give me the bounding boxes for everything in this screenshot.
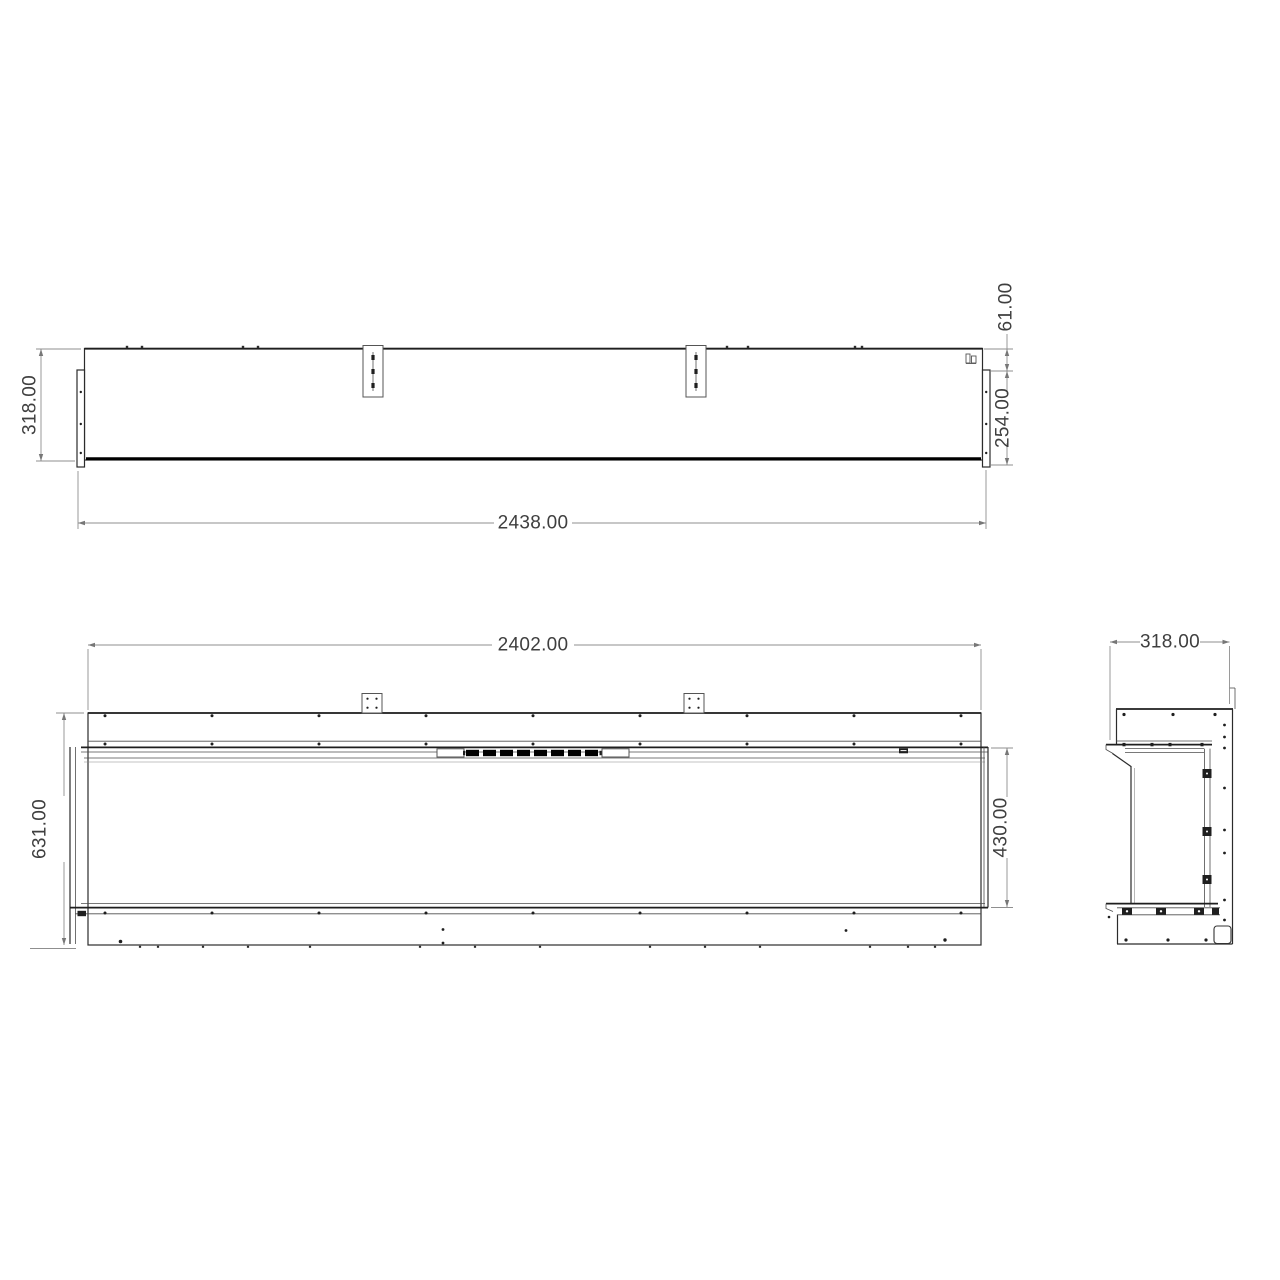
drawing-line bbox=[602, 749, 629, 757]
clip-mark bbox=[1123, 743, 1126, 746]
screw-dot bbox=[80, 452, 82, 454]
bottom-clip bbox=[78, 911, 87, 916]
drawing-line bbox=[600, 751, 602, 755]
drawing-line bbox=[1206, 773, 1208, 775]
top-view-chassis bbox=[85, 349, 983, 461]
screw-dot bbox=[639, 714, 642, 717]
rivet-dot bbox=[688, 698, 690, 700]
dim-label-top-front-depth: 254.00 bbox=[993, 388, 1014, 448]
drawing-line bbox=[1113, 754, 1132, 767]
edge-tick bbox=[861, 346, 863, 348]
drawing-line bbox=[371, 383, 374, 388]
screw-dot bbox=[960, 743, 963, 746]
screw-dot bbox=[1223, 787, 1226, 790]
dimension-arrow bbox=[62, 713, 66, 720]
dimension-arrow bbox=[39, 454, 43, 461]
screw-dot bbox=[104, 714, 107, 717]
screw-dot bbox=[1124, 938, 1127, 941]
dimension-top-width: 2438.00 bbox=[78, 470, 986, 534]
screw-dot bbox=[746, 714, 749, 717]
screw-dot bbox=[985, 391, 987, 393]
rivet-dot bbox=[697, 707, 699, 709]
dim-label-top-rear-offset: 61.00 bbox=[996, 282, 1017, 331]
edge-tick bbox=[126, 346, 128, 348]
screw-dot bbox=[318, 743, 321, 746]
screw-dot bbox=[1223, 852, 1226, 855]
side-view: 318.00 bbox=[1106, 632, 1235, 945]
dimension-arrow bbox=[1005, 371, 1009, 378]
burner-dash bbox=[466, 750, 479, 756]
burner-dash bbox=[483, 750, 496, 756]
drawing-line bbox=[1106, 745, 1113, 754]
screw-dot bbox=[1223, 736, 1226, 739]
edge-tick bbox=[202, 946, 204, 948]
edge-tick bbox=[247, 946, 249, 948]
dimension-arrow bbox=[1005, 458, 1009, 465]
screw-dot bbox=[211, 912, 214, 915]
screw-dot bbox=[1122, 713, 1125, 716]
drawing-line bbox=[1106, 904, 1113, 912]
clip-mark bbox=[1151, 743, 1154, 746]
mounting-tab-right bbox=[684, 694, 704, 714]
drawing-line bbox=[1198, 910, 1200, 912]
drawing-line bbox=[371, 369, 374, 374]
screw-dot bbox=[960, 714, 963, 717]
screw-dot bbox=[1223, 747, 1226, 750]
screw-dot bbox=[853, 912, 856, 915]
screw-dot bbox=[1108, 916, 1111, 919]
dimension-arrow bbox=[974, 643, 981, 647]
mounting-bracket-right bbox=[686, 346, 706, 398]
screw-dot bbox=[639, 743, 642, 746]
screw-dot bbox=[985, 423, 987, 425]
screw-dot bbox=[1166, 938, 1169, 941]
screw-dot bbox=[442, 942, 445, 945]
drawing-line bbox=[1212, 908, 1219, 915]
edge-tick bbox=[854, 346, 856, 348]
screw-dot bbox=[532, 912, 535, 915]
edge-tick bbox=[759, 946, 761, 948]
burner-dash bbox=[534, 750, 547, 756]
dimension-arrow bbox=[1005, 900, 1009, 907]
drawing-line bbox=[371, 355, 374, 360]
rivet-dot bbox=[366, 698, 368, 700]
mounting-bracket-left bbox=[363, 346, 383, 398]
dimension-top-rear-offset: 61.00 bbox=[984, 282, 1017, 371]
side-bottom-flange bbox=[1106, 904, 1220, 915]
latch bbox=[899, 748, 908, 753]
edge-tick bbox=[539, 946, 541, 948]
dim-label-side-depth: 318.00 bbox=[1140, 632, 1200, 653]
burner-dash bbox=[585, 750, 598, 756]
screw-dot bbox=[211, 743, 214, 746]
dim-label-front-opening-height: 430.00 bbox=[991, 798, 1012, 858]
dimension-arrow bbox=[979, 521, 986, 525]
dimension-arrow bbox=[1005, 748, 1009, 755]
screw-dot bbox=[1223, 899, 1226, 902]
dimension-top-front-depth: 254.00 bbox=[991, 371, 1014, 465]
dimension-front-opening-height: 430.00 bbox=[991, 748, 1014, 908]
dimension-arrow bbox=[88, 643, 95, 647]
edge-tick bbox=[242, 346, 244, 348]
edge-tick bbox=[649, 946, 651, 948]
burner-dash bbox=[568, 750, 581, 756]
drawing-line bbox=[362, 694, 382, 714]
dim-label-front-height: 631.00 bbox=[30, 799, 51, 859]
dim-label-top-depth: 318.00 bbox=[20, 375, 41, 435]
rivet-dot bbox=[697, 698, 699, 700]
drawing-line bbox=[1206, 879, 1208, 881]
screw-dot bbox=[639, 912, 642, 915]
screw-dot bbox=[425, 743, 428, 746]
screw-dot bbox=[119, 940, 123, 944]
edge-tick bbox=[141, 346, 143, 348]
drawing-line bbox=[684, 694, 704, 714]
screw-dot bbox=[532, 743, 535, 746]
drawing-sheet: 318.00 2438.00 61.00 254.00 bbox=[0, 0, 1280, 1280]
edge-tick bbox=[257, 346, 259, 348]
dimension-top-depth: 318.00 bbox=[20, 349, 82, 461]
screw-dot bbox=[104, 743, 107, 746]
screw-dot bbox=[80, 423, 82, 425]
drawing-line bbox=[694, 383, 697, 388]
screw-dot bbox=[746, 743, 749, 746]
top-view: 318.00 2438.00 61.00 254.00 bbox=[20, 282, 1017, 533]
edge-tick bbox=[157, 946, 159, 948]
screw-dot bbox=[853, 714, 856, 717]
edge-tick bbox=[726, 346, 728, 348]
screw-dot bbox=[80, 391, 82, 393]
rivet-dot bbox=[688, 707, 690, 709]
burner-dash bbox=[500, 750, 513, 756]
cable-notch bbox=[1214, 926, 1231, 944]
screw-dot bbox=[1171, 713, 1174, 716]
edge-tick bbox=[704, 946, 706, 948]
edge-tick bbox=[419, 946, 421, 948]
burner-dash bbox=[551, 750, 564, 756]
edge-tick bbox=[747, 346, 749, 348]
dim-label-top-width: 2438.00 bbox=[498, 513, 569, 534]
screw-dot bbox=[1204, 938, 1207, 941]
screw-dot bbox=[845, 929, 848, 932]
clip-mark bbox=[1169, 743, 1172, 746]
screw-dot bbox=[211, 714, 214, 717]
screw-dot bbox=[985, 452, 987, 454]
rivet-dot bbox=[366, 707, 368, 709]
edge-tick bbox=[474, 946, 476, 948]
drawing-line bbox=[1206, 831, 1208, 833]
side-top-flange bbox=[1106, 745, 1212, 767]
drawing-line bbox=[1126, 910, 1128, 912]
screw-dot bbox=[104, 912, 107, 915]
screw-dot bbox=[1223, 919, 1226, 922]
front-view: 2402.00 631.00 430.00 bbox=[30, 635, 1014, 949]
rivet-dot bbox=[375, 698, 377, 700]
screw-dot bbox=[943, 938, 946, 941]
drawing-line bbox=[694, 369, 697, 374]
screw-dot bbox=[1213, 713, 1216, 716]
screw-dot bbox=[425, 912, 428, 915]
drawing-line bbox=[437, 749, 464, 757]
screw-dot bbox=[442, 928, 445, 931]
screw-dot bbox=[1223, 724, 1226, 727]
screw-dot bbox=[318, 714, 321, 717]
rivet-dot bbox=[375, 707, 377, 709]
mounting-tab-left bbox=[362, 694, 382, 714]
dimension-arrow bbox=[1223, 640, 1230, 644]
drawing-line bbox=[463, 751, 465, 755]
dimension-front-width: 2402.00 bbox=[88, 635, 981, 711]
edge-tick bbox=[869, 946, 871, 948]
dim-label-front-width: 2402.00 bbox=[498, 635, 569, 656]
side-glass-panel bbox=[1131, 749, 1212, 907]
screw-dot bbox=[425, 714, 428, 717]
screw-dot bbox=[746, 912, 749, 915]
edge-tick bbox=[907, 946, 909, 948]
dimension-arrow bbox=[1005, 364, 1009, 371]
screw-dot bbox=[853, 743, 856, 746]
dimension-side-depth: 318.00 bbox=[1110, 632, 1230, 741]
screw-dot bbox=[960, 912, 963, 915]
dimension-arrow bbox=[1005, 349, 1009, 356]
dimension-arrow bbox=[1110, 640, 1117, 644]
clip-mark bbox=[1201, 743, 1204, 746]
dimension-arrow bbox=[62, 938, 66, 945]
screw-dot bbox=[532, 714, 535, 717]
edge-tick bbox=[309, 946, 311, 948]
drawing-line bbox=[694, 355, 697, 360]
screw-dot bbox=[1223, 829, 1226, 832]
edge-tick bbox=[934, 946, 936, 948]
edge-tick bbox=[139, 946, 141, 948]
drawing-line bbox=[1160, 910, 1162, 912]
dimension-arrow bbox=[39, 349, 43, 356]
burner-dash bbox=[517, 750, 530, 756]
screw-dot bbox=[318, 912, 321, 915]
dimension-arrow bbox=[78, 521, 85, 525]
technical-drawing: 318.00 2438.00 61.00 254.00 bbox=[0, 0, 1280, 1280]
